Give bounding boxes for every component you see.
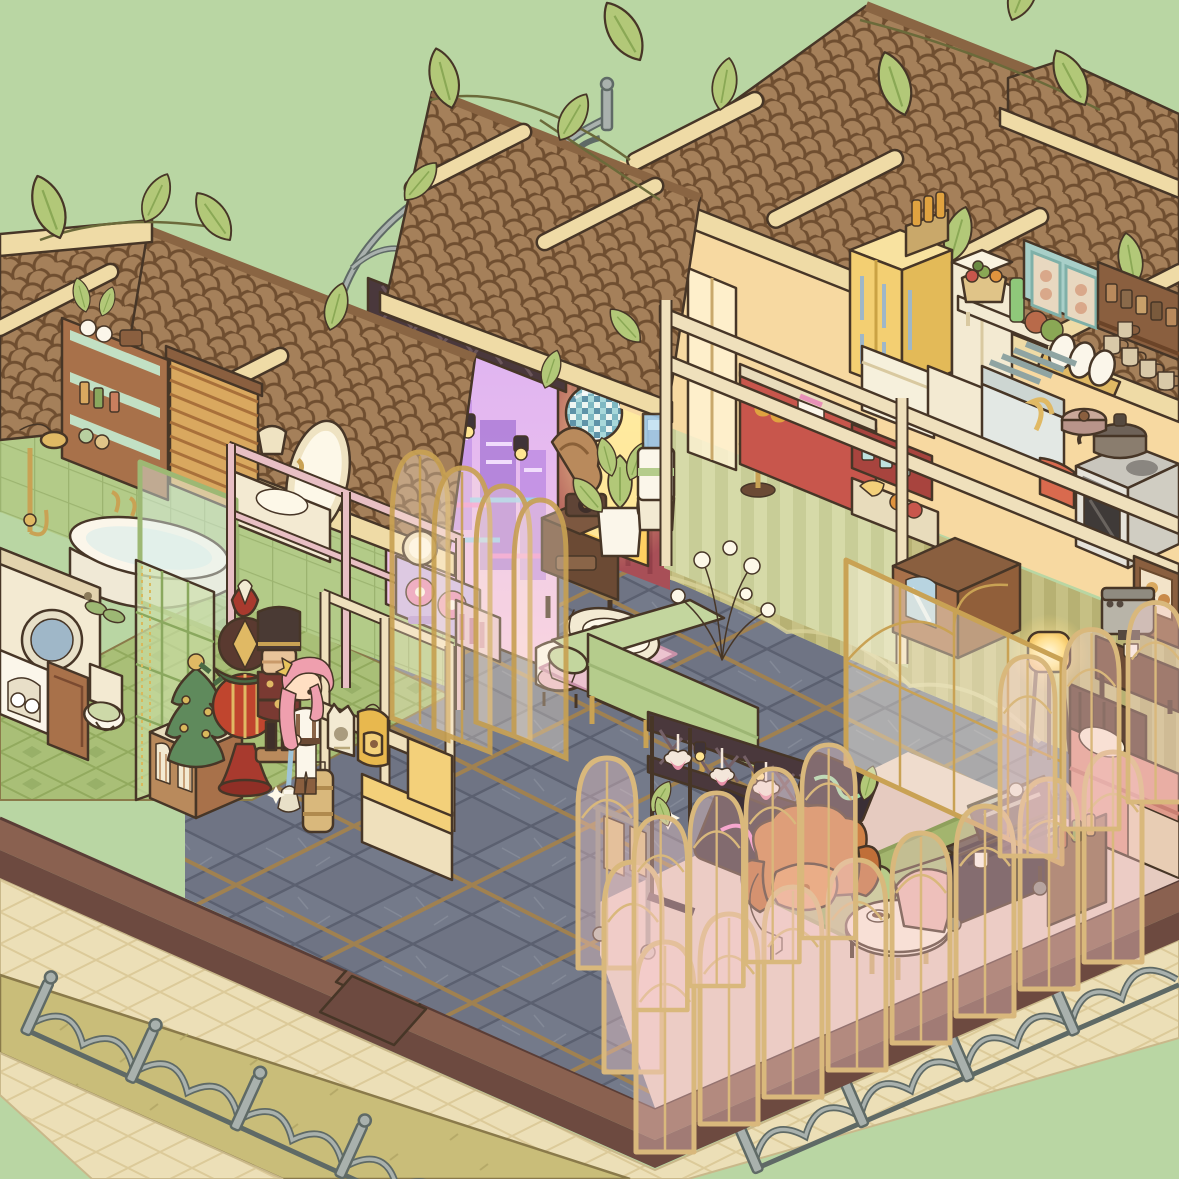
gold-arch-screens[interactable]: [392, 452, 566, 758]
yellow-backpack[interactable]: [358, 704, 388, 766]
cat-tote-bag[interactable]: [328, 704, 354, 756]
scene-canvas: [0, 0, 1179, 1179]
wood-cabinet[interactable]: [48, 662, 88, 760]
game-viewport: [0, 0, 1179, 1179]
cooktop-pan[interactable]: [1062, 409, 1106, 435]
